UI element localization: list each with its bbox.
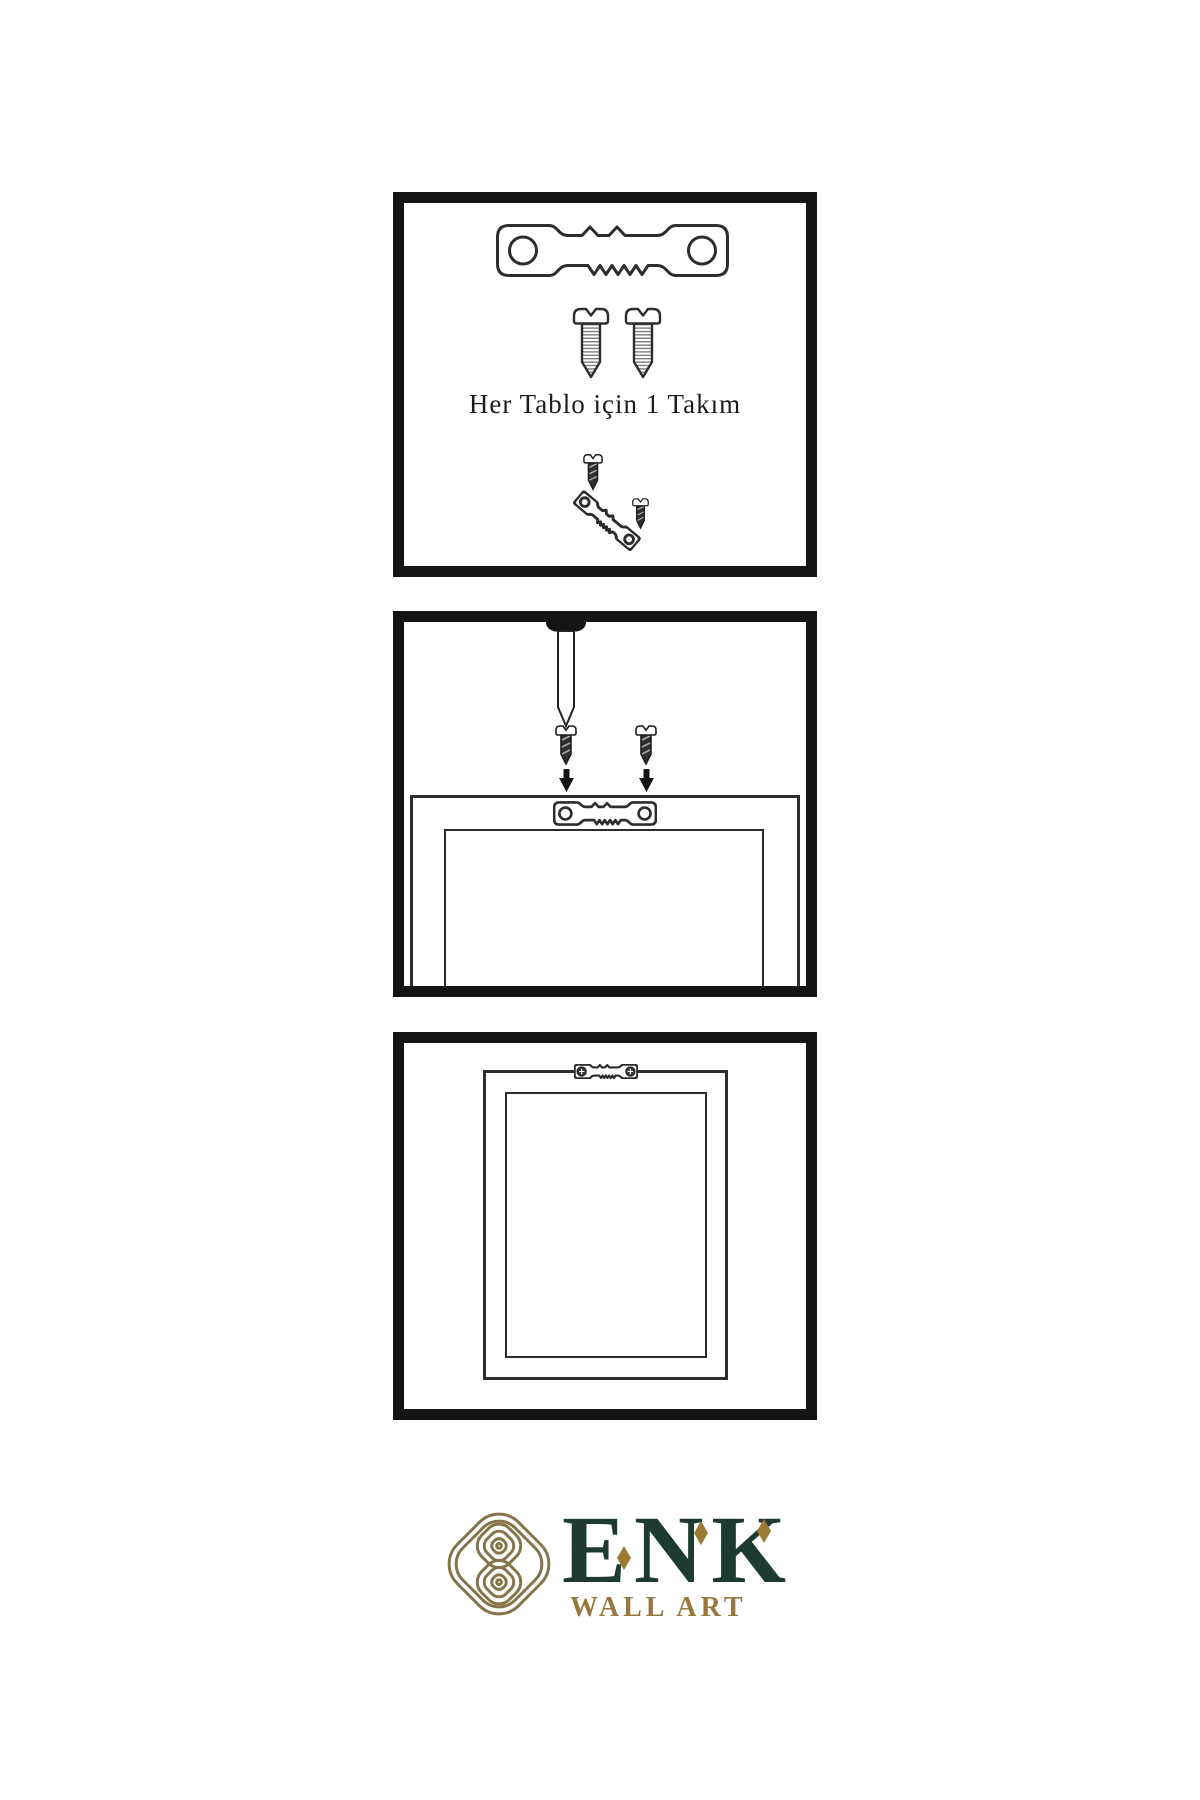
picture-frame-inner xyxy=(505,1092,707,1358)
knot-emblem-icon xyxy=(435,1500,563,1628)
screw-icon xyxy=(632,497,649,530)
step-panel-wall-mounting xyxy=(393,611,817,997)
arrow-down-icon xyxy=(639,769,654,792)
screw-icon xyxy=(583,452,603,492)
sawtooth-hanger-icon xyxy=(553,801,657,826)
screw-icon xyxy=(624,306,662,380)
sawtooth-hanger-mounted-icon xyxy=(574,1064,638,1079)
instruction-sheet: Her Tablo için 1 Takım xyxy=(0,0,1200,1800)
arrow-down-icon xyxy=(559,769,574,792)
picture-frame-inner xyxy=(444,829,764,997)
brand-tagline: WALL ART xyxy=(570,1592,747,1624)
sawtooth-hanger-icon xyxy=(495,223,730,278)
screw-icon xyxy=(635,724,657,766)
step-panel-hardware: Her Tablo için 1 Takım xyxy=(393,192,817,577)
brand-name: ENK xyxy=(562,1502,792,1598)
step-panel-hanging xyxy=(393,1032,817,1420)
nail-icon xyxy=(544,620,588,728)
screw-icon xyxy=(555,724,577,766)
hardware-caption: Her Tablo için 1 Takım xyxy=(404,389,806,420)
hanger-assembly-icon xyxy=(575,452,675,562)
screw-icon xyxy=(572,306,610,380)
